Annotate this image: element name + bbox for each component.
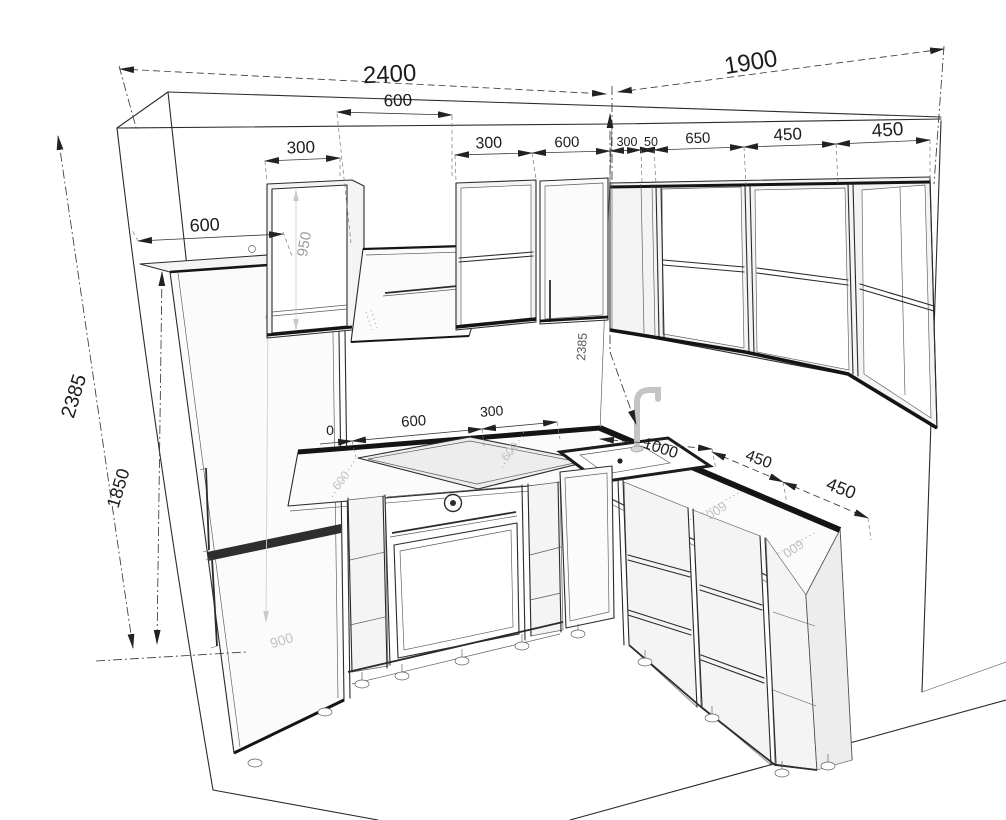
wall-cabinet-300-shelf bbox=[456, 180, 536, 330]
wall-cabinet-300-tall bbox=[267, 180, 364, 338]
dim-corner-wall-height: 2385 bbox=[574, 332, 590, 361]
dim-wall-cab-650: 650 bbox=[685, 130, 711, 148]
fridge-front bbox=[170, 260, 344, 753]
fridge-top-hinge bbox=[249, 246, 256, 253]
dim-filler-300: 300 bbox=[617, 135, 638, 149]
dim-line-hood600 bbox=[337, 112, 452, 115]
dim-counter-300: 300 bbox=[479, 402, 504, 420]
sink-drain bbox=[617, 458, 622, 463]
dim-base-450b: 450 bbox=[824, 474, 859, 503]
bay650-opening bbox=[662, 187, 744, 348]
wall-cabinet-600-door bbox=[540, 178, 608, 324]
dim-line-wc300a bbox=[265, 158, 340, 161]
base-cabinets-left bbox=[348, 466, 614, 688]
base-mid-open-bay bbox=[528, 482, 563, 636]
ext-1900-right bbox=[934, 46, 944, 184]
dim-filler-50: 50 bbox=[644, 135, 658, 149]
dim-line-counter300 bbox=[482, 422, 557, 429]
dim-base-450a: 450 bbox=[743, 447, 774, 472]
ceiling-slab-edge bbox=[168, 92, 187, 267]
dim-line-fridge600 bbox=[138, 234, 283, 241]
dim-line-wc650 bbox=[654, 147, 744, 150]
fridge-foot-right bbox=[318, 708, 332, 716]
corner-base-door bbox=[560, 466, 614, 628]
oven-knob-center bbox=[450, 500, 456, 506]
dim-fridge-depth: 600 bbox=[189, 214, 220, 236]
base-right-bay2 bbox=[693, 510, 771, 765]
dim-line-1900 bbox=[618, 49, 944, 92]
ceiling-front-edge bbox=[168, 92, 941, 117]
kitchen-drawing-canvas: 2400 1900 600 300 300 600 300 50 650 450… bbox=[0, 0, 1006, 820]
oven-door bbox=[394, 523, 519, 658]
dim-line-filler300 bbox=[610, 150, 641, 151]
floor-line-left bbox=[213, 790, 378, 820]
dim-line-wc600 bbox=[532, 151, 610, 153]
dim-line-wc300b bbox=[455, 153, 532, 155]
dim-counter-partial: 0 bbox=[326, 422, 334, 438]
dim-wall-cab-450a: 450 bbox=[773, 124, 802, 144]
fridge-foot-left bbox=[248, 759, 262, 767]
dim-wall-cab-300a: 300 bbox=[286, 138, 315, 158]
dim-left-wall-total: 2400 bbox=[362, 60, 417, 90]
ceiling-wall-junction bbox=[117, 119, 941, 128]
dim-line-1850 bbox=[157, 272, 162, 644]
dim-wall-cab-450b: 450 bbox=[871, 119, 904, 142]
ceiling-corner-diagonal bbox=[117, 92, 168, 128]
base-left-open-bay bbox=[348, 496, 388, 672]
dim-wall-cab-600: 600 bbox=[554, 134, 579, 151]
floor-baseboard-right bbox=[922, 662, 1006, 692]
dim-room-height: 2385 bbox=[57, 372, 91, 421]
dim-line-wc450a bbox=[744, 144, 836, 147]
dim-hood-width: 600 bbox=[383, 91, 412, 111]
dim-right-wall-total: 1900 bbox=[722, 45, 779, 80]
dim-counter-600: 600 bbox=[401, 412, 427, 431]
dim-wall-cab-300b: 300 bbox=[475, 135, 502, 153]
kitchen-3d-drawing: 2400 1900 600 300 300 600 300 50 650 450… bbox=[0, 0, 1006, 820]
ext-2400-left bbox=[119, 66, 137, 131]
